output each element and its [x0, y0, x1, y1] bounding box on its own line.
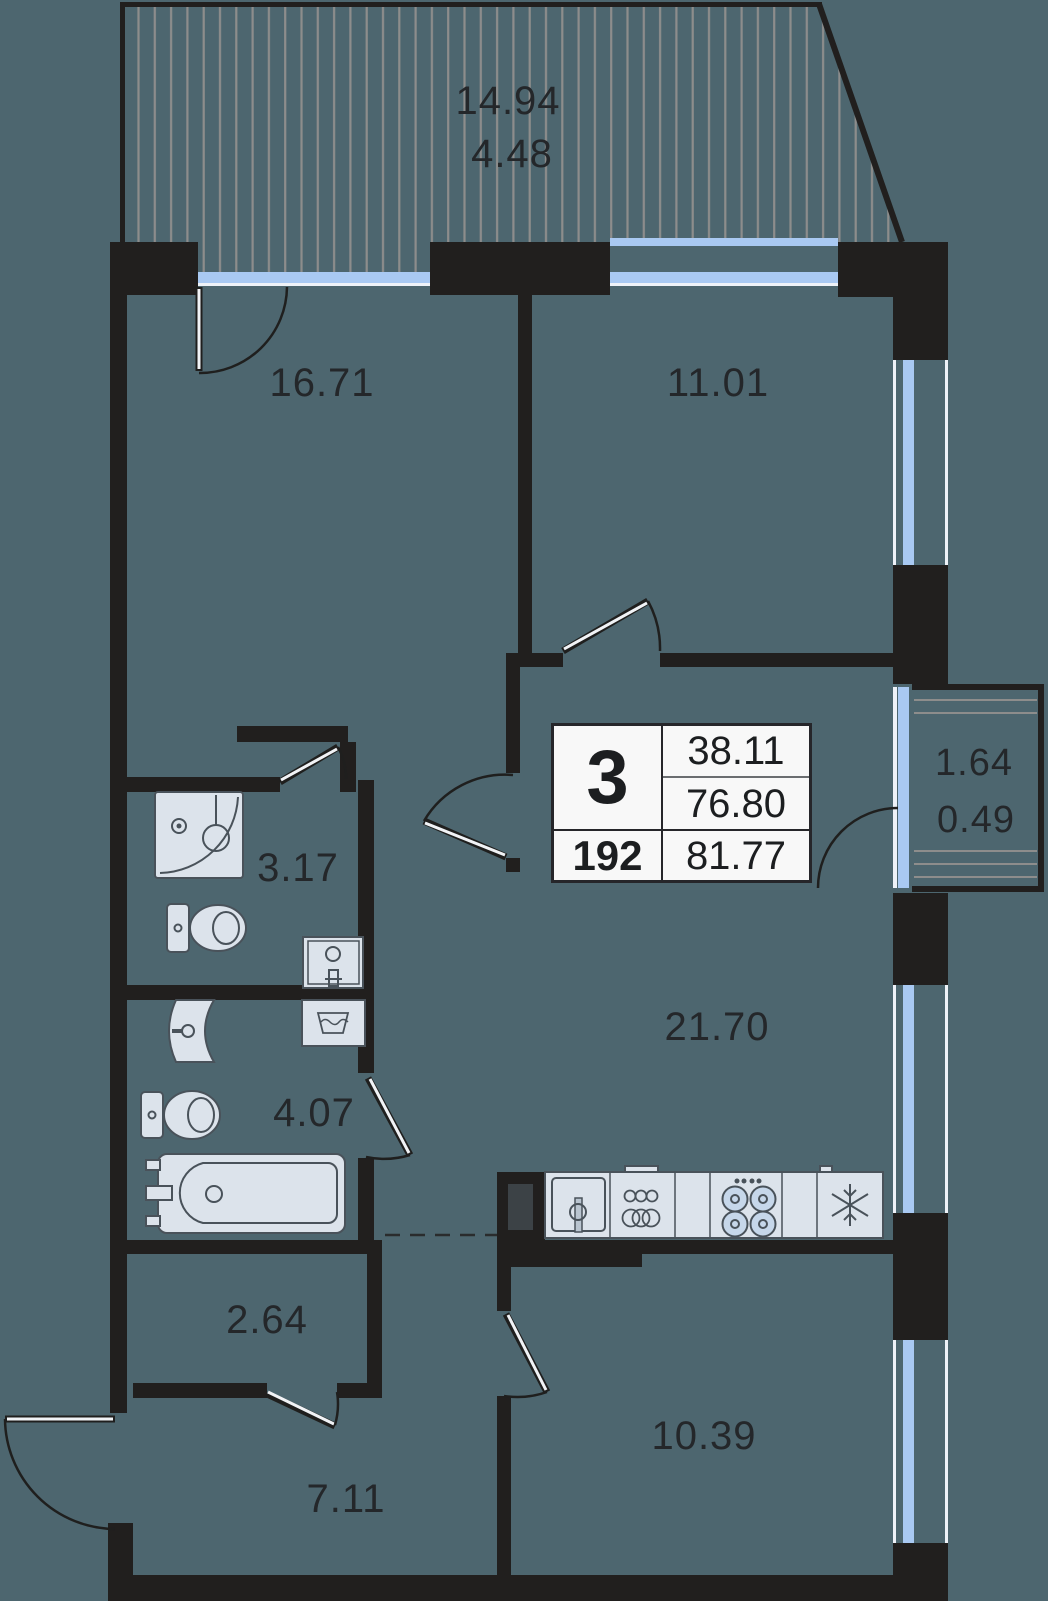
room-area-label-room-bottom: 10.39 — [651, 1416, 756, 1456]
entrance-door-arc — [5, 1419, 115, 1529]
area-value-2: 76.80 — [663, 778, 809, 829]
wall-sink-icon — [169, 1000, 214, 1062]
room-bottom-door-arc — [504, 1392, 547, 1397]
floor-plan-drawing — [0, 0, 1048, 1601]
hall-door-arc — [424, 775, 513, 821]
room-area-label-bedroom-large: 16.71 — [269, 363, 374, 403]
bathroom2-door-arc — [366, 1155, 410, 1159]
room-area-label-bathroom-tub: 4.07 — [273, 1093, 355, 1133]
bathtub-icon — [146, 1154, 345, 1233]
balcony — [893, 684, 1044, 892]
shower-icon — [155, 792, 243, 878]
balcony-area-label: 1.64 — [935, 744, 1013, 782]
terrace-area-label2: 4.48 — [471, 134, 553, 174]
washing-machine-icon — [302, 1000, 365, 1046]
unit-number: 192 — [554, 831, 661, 880]
ventilation-shaft-inner — [508, 1184, 533, 1230]
room-area-label-hallway: 7.11 — [307, 1479, 386, 1519]
storage-door-arc — [335, 1392, 338, 1425]
window-right-middle — [903, 985, 914, 1213]
balcony-hatch — [914, 700, 1037, 877]
balcony-area-label2: 0.49 — [937, 801, 1015, 839]
room-area-label-storage: 2.64 — [226, 1300, 308, 1340]
toilet-icon — [141, 1091, 220, 1139]
balcony-glazing — [898, 687, 909, 888]
window-top-right — [610, 272, 838, 283]
room-area-label-living-kitchen: 21.70 — [664, 1007, 769, 1047]
vanity-sink-icon — [303, 937, 363, 988]
apartment-info-box: 3 38.11 76.80 192 81.77 — [551, 723, 812, 883]
window-right-upper — [903, 360, 914, 565]
windows — [198, 272, 948, 1543]
room-area-label-bathroom-shower: 3.17 — [257, 848, 339, 888]
toilet-icon — [167, 904, 246, 952]
bedroom2-door-arc — [648, 601, 660, 651]
window-right-lower — [903, 1340, 914, 1543]
floor-plan: 14.94 4.48 16.71 11.01 3.17 4.07 2.64 21… — [0, 0, 1048, 1601]
kitchen-counter — [545, 1166, 883, 1238]
room-area-label-bedroom-small: 11.01 — [667, 363, 769, 403]
area-value-1: 38.11 — [663, 726, 809, 776]
room-count: 3 — [554, 726, 661, 829]
window-terrace-door — [198, 272, 430, 283]
terrace-railing-glazing — [610, 238, 838, 246]
doors — [5, 287, 898, 1529]
area-total: 81.77 — [663, 831, 809, 880]
terrace-area-label: 14.94 — [455, 81, 560, 121]
balcony-door-arc — [818, 808, 898, 888]
